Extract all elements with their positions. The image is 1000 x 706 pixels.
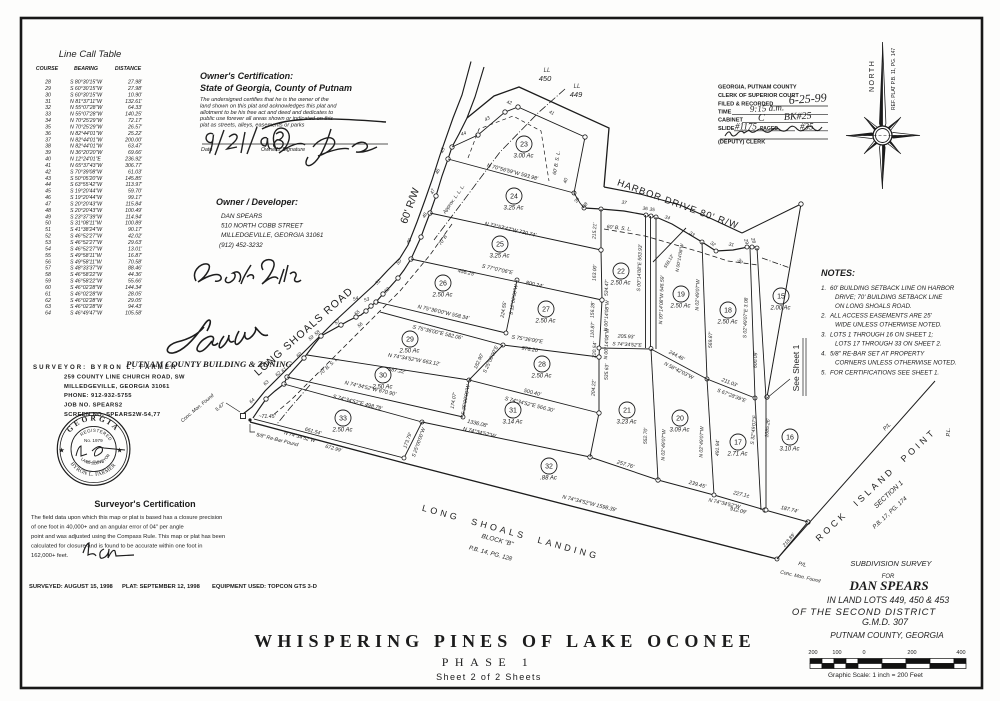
svg-text:49: 49 — [45, 214, 51, 220]
svg-text:N 82°44'01"W: N 82°44'01"W — [70, 144, 103, 150]
svg-text:C: C — [758, 113, 765, 124]
svg-text:28: 28 — [538, 362, 546, 369]
svg-text:N 36°20'20"W: N 36°20'20"W — [70, 150, 103, 156]
svg-text:State of Georgia, County of Pu: State of Georgia, County of Putnam — [200, 83, 352, 93]
svg-text:~71.45': ~71.45' — [258, 414, 276, 420]
svg-text:534.47': 534.47' — [604, 279, 611, 297]
svg-text:100: 100 — [832, 650, 841, 656]
svg-text:S 41°38'24"W: S 41°38'24"W — [70, 227, 103, 233]
svg-text:5/8" RE-BAR SET AT PROPERTY: 5/8" RE-BAR SET AT PROPERTY — [830, 351, 925, 358]
svg-text:S 50°05'20"W: S 50°05'20"W — [70, 176, 103, 182]
svg-text:29: 29 — [406, 337, 414, 344]
svg-text:S 46°02'28"W: S 46°02'28"W — [70, 304, 103, 310]
svg-text:Owner / Developer:: Owner / Developer: — [216, 197, 298, 207]
svg-text:IN LAND LOTS 449, 450 & 453: IN LAND LOTS 449, 450 & 453 — [827, 595, 949, 605]
svg-text:2.50 Ac: 2.50 Ac — [530, 374, 551, 380]
svg-text:PHONE: 912-932-5755: PHONE: 912-932-5755 — [64, 393, 132, 399]
svg-text:MILLEDGEVILLE, GEORGIA 31061: MILLEDGEVILLE, GEORGIA 31061 — [221, 232, 324, 239]
svg-text:S 19°20'44"W: S 19°20'44"W — [70, 195, 103, 201]
svg-text:S 46°52'27"W: S 46°52'27"W — [70, 240, 103, 246]
svg-text:36: 36 — [45, 131, 51, 137]
svg-text:26.57': 26.57' — [127, 124, 143, 130]
svg-text:61.03': 61.03' — [128, 169, 143, 175]
svg-text:40: 40 — [45, 157, 51, 163]
svg-text:55.66': 55.66' — [128, 279, 143, 285]
svg-text:70.58': 70.58' — [128, 259, 143, 265]
svg-text:58: 58 — [45, 272, 51, 278]
svg-text:144.34': 144.34' — [125, 285, 143, 291]
svg-text:N 12°24'01"E: N 12°24'01"E — [70, 157, 101, 163]
svg-text:point and was adjusted using t: point and was adjusted using the Compass… — [31, 534, 225, 540]
svg-text:3.09 Ac: 3.09 Ac — [669, 428, 689, 434]
svg-text:51: 51 — [45, 227, 51, 233]
svg-text:N 82°44'01"W: N 82°44'01"W — [70, 137, 103, 143]
svg-text:#1175: #1175 — [735, 122, 757, 132]
svg-text:3.14 Ac: 3.14 Ac — [502, 420, 522, 426]
svg-text:PUTNAM COUNTY, GEORGIA: PUTNAM COUNTY, GEORGIA — [830, 631, 944, 640]
svg-text:2.50 Ac: 2.50 Ac — [398, 349, 419, 355]
svg-text:54: 54 — [45, 246, 51, 252]
svg-text:2.50 Ac: 2.50 Ac — [371, 385, 392, 391]
svg-text:69.66': 69.66' — [128, 150, 143, 156]
svg-text:450: 450 — [539, 74, 552, 83]
svg-text:PAGED: PAGED — [760, 126, 778, 132]
svg-text:27.98': 27.98' — [127, 86, 143, 92]
svg-text:236.92': 236.92' — [124, 157, 143, 163]
svg-text:115.84': 115.84' — [126, 201, 143, 207]
svg-text:60' BUILDING SETBACK LINE ON H: 60' BUILDING SETBACK LINE ON HARBOR — [830, 285, 955, 292]
svg-text:552.70': 552.70' — [643, 427, 650, 444]
svg-text:1.: 1. — [821, 285, 826, 292]
svg-text:44: 44 — [45, 182, 51, 188]
svg-text:13.01': 13.01' — [128, 246, 143, 252]
svg-text:41: 41 — [45, 163, 51, 169]
svg-text:27: 27 — [542, 307, 550, 314]
svg-text:25: 25 — [496, 242, 504, 249]
svg-text:.88 Ac: .88 Ac — [540, 476, 557, 482]
svg-text:37: 37 — [621, 200, 627, 206]
svg-text:59.70': 59.70' — [128, 189, 143, 195]
svg-text:31: 31 — [509, 408, 517, 415]
svg-text:2.50 Ac: 2.50 Ac — [609, 281, 630, 287]
svg-text:★: ★ — [117, 447, 123, 455]
svg-text:P.L.: P.L. — [946, 427, 952, 436]
svg-text:31: 31 — [45, 99, 51, 105]
svg-text:162,000+ feet.: 162,000+ feet. — [31, 553, 69, 559]
svg-text:60: 60 — [45, 285, 51, 291]
svg-text:25.22': 25.22' — [127, 131, 143, 137]
svg-text:28.05': 28.05' — [127, 291, 143, 297]
svg-text:43: 43 — [45, 176, 51, 182]
svg-text:S 46°52'27"W: S 46°52'27"W — [70, 246, 103, 252]
svg-text:No. 1979: No. 1979 — [84, 438, 103, 443]
svg-text:259 COUNTY LINE CHURCH ROAD, S: 259 COUNTY LINE CHURCH ROAD, SW — [64, 374, 185, 380]
svg-text:156.28': 156.28' — [590, 301, 597, 319]
svg-text:62: 62 — [45, 298, 51, 304]
svg-text:S 31°08'11"W: S 31°08'11"W — [70, 221, 103, 227]
svg-text:ON LONG SHOALS ROAD.: ON LONG SHOALS ROAD. — [835, 303, 912, 310]
svg-text:S 49°58'11"W: S 49°58'11"W — [70, 253, 103, 259]
svg-text:94.43': 94.43' — [128, 304, 143, 310]
svg-text:CLERK OF SUPERIOR COURT: CLERK OF SUPERIOR COURT — [718, 93, 799, 99]
svg-text:N 70°25'29"W: N 70°25'29"W — [70, 124, 103, 130]
svg-text:19: 19 — [677, 292, 685, 299]
svg-text:N 55°07'28"W: N 55°07'28"W — [70, 112, 103, 118]
svg-text:WIDE UNLESS OTHERWISE NOTED.: WIDE UNLESS OTHERWISE NOTED. — [835, 322, 942, 329]
svg-text:28: 28 — [44, 80, 51, 86]
svg-text:88.46': 88.46' — [128, 266, 143, 272]
svg-text:16: 16 — [786, 435, 794, 442]
svg-text:Sheet 2 of 2 Sheets: Sheet 2 of 2 Sheets — [436, 672, 542, 682]
svg-text:DRIVE; 70' BUILDING SETBACK LI: DRIVE; 70' BUILDING SETBACK LINE — [835, 294, 943, 301]
svg-text:3.10 Ac: 3.10 Ac — [779, 447, 799, 453]
svg-text:The undersigned certifies that: The undersigned certifies that he is the… — [200, 97, 329, 103]
svg-text:53: 53 — [45, 240, 51, 246]
svg-text:38: 38 — [45, 144, 51, 150]
svg-text:3.25 Ac: 3.25 Ac — [489, 254, 509, 260]
svg-text:32: 32 — [45, 105, 51, 111]
svg-text:S 80°30'15"W: S 80°30'15"W — [70, 80, 103, 86]
svg-text:10.90': 10.90' — [128, 92, 143, 98]
svg-text:N 82°44'01"W: N 82°44'01"W — [70, 131, 103, 137]
svg-text:DISTANCE: DISTANCE — [115, 66, 142, 72]
svg-text:The field data upon which this: The field data upon which this map or pl… — [31, 515, 222, 521]
svg-text:S 23°37'39"W: S 23°37'39"W — [70, 214, 103, 220]
svg-text:SLIDE: SLIDE — [718, 126, 735, 132]
svg-text:36: 36 — [642, 206, 648, 212]
svg-text:N 81°37'11"W: N 81°37'11"W — [70, 99, 103, 105]
svg-text:NORTH: NORTH — [869, 60, 876, 92]
svg-text:ALL ACCESS EASEMENTS ARE 25': ALL ACCESS EASEMENTS ARE 25' — [829, 313, 933, 320]
svg-text:3.23 Ac: 3.23 Ac — [616, 420, 636, 426]
svg-text:GEORGIA, PUTNAM COUNTY: GEORGIA, PUTNAM COUNTY — [718, 85, 797, 91]
svg-text:600.09': 600.09' — [753, 351, 760, 368]
svg-text:34: 34 — [45, 118, 51, 124]
svg-text:2.: 2. — [820, 313, 826, 320]
svg-text:45: 45 — [45, 189, 51, 195]
svg-text:COURSE: COURSE — [36, 66, 59, 72]
svg-text:LOTS 1 THROUGH 16 ON SHEET 1;: LOTS 1 THROUGH 16 ON SHEET 1; — [830, 332, 933, 339]
svg-text:18: 18 — [724, 308, 732, 315]
svg-text:3.00 Ac: 3.00 Ac — [513, 154, 533, 160]
svg-text:64: 64 — [45, 311, 51, 317]
svg-text:29.05': 29.05' — [127, 298, 143, 304]
svg-text:S 46°49'47"W: S 46°49'47"W — [70, 311, 103, 317]
svg-text:CORNERS UNLESS OTHERWISE NOTED: CORNERS UNLESS OTHERWISE NOTED. — [835, 360, 957, 367]
svg-text:24: 24 — [510, 194, 518, 201]
svg-text:449: 449 — [570, 90, 583, 99]
svg-text:N 02°49'07"W: N 02°49'07"W — [698, 425, 705, 458]
svg-text:33: 33 — [45, 112, 51, 118]
svg-text:99.17': 99.17' — [128, 195, 143, 201]
svg-text:140.25': 140.25' — [125, 112, 143, 118]
svg-text:569.87': 569.87' — [708, 331, 715, 348]
svg-text:510 NORTH COBB STREET: 510 NORTH COBB STREET — [221, 223, 304, 230]
svg-text:306.77': 306.77' — [125, 163, 143, 169]
svg-text:NOTES:: NOTES: — [821, 268, 855, 278]
svg-text:S 70°39'08"W: S 70°39'08"W — [70, 169, 103, 175]
svg-text:S 60°30'15"W: S 60°30'15"W — [70, 86, 103, 92]
svg-text:205.93': 205.93' — [616, 334, 635, 341]
svg-text:land shown on this plat and ac: land shown on this plat and acknowledges… — [200, 103, 337, 109]
svg-text:132.61': 132.61' — [125, 99, 143, 105]
svg-text:S 49°58'11"W: S 49°58'11"W — [70, 259, 103, 265]
svg-text:17: 17 — [734, 440, 742, 447]
svg-text:35: 35 — [649, 207, 655, 213]
svg-text:N 02°49'07"W: N 02°49'07"W — [660, 428, 667, 461]
svg-text:S 20°20'43"W: S 20°20'43"W — [70, 208, 103, 214]
svg-text:S 63°55'42"W: S 63°55'42"W — [70, 182, 103, 188]
svg-text:22: 22 — [617, 269, 625, 276]
svg-text:PLAT: SEPTEMBER 12, 1998: PLAT: SEPTEMBER 12, 1998 — [122, 584, 201, 590]
svg-text:★: ★ — [59, 447, 65, 455]
svg-text:200.00': 200.00' — [124, 137, 143, 143]
svg-text:6-25-99: 6-25-99 — [788, 90, 827, 107]
svg-text:220.54': 220.54' — [592, 341, 599, 360]
svg-text:29: 29 — [44, 86, 51, 92]
svg-text:200: 200 — [907, 650, 916, 656]
svg-text:S 19°20'44"W: S 19°20'44"W — [70, 189, 103, 195]
svg-text:100.89': 100.89' — [125, 221, 143, 227]
svg-text:30: 30 — [45, 92, 51, 98]
svg-text:SUBDIVISION SURVEY: SUBDIVISION SURVEY — [850, 559, 932, 568]
svg-text:TIME: TIME — [718, 110, 732, 116]
svg-text:535.63': 535.63' — [604, 363, 611, 381]
svg-text:23: 23 — [520, 142, 528, 149]
svg-text:Graphic Scale: 1 inch = 2: Graphic Scale: 1 inch = 200 Feet — [828, 672, 923, 679]
svg-text:5.: 5. — [821, 370, 826, 377]
svg-text:MILLEDGEVILLE, GEORGIA 31061: MILLEDGEVILLE, GEORGIA 31061 — [64, 384, 170, 390]
svg-text:42.02': 42.02' — [128, 234, 143, 240]
svg-text:30: 30 — [379, 373, 387, 380]
svg-text:105.58': 105.58' — [125, 311, 143, 317]
svg-text:2.50 Ac: 2.50 Ac — [669, 304, 690, 310]
svg-text:491.94': 491.94' — [715, 439, 722, 456]
svg-text:calculated for closure and is: calculated for closure and is found to b… — [31, 544, 202, 550]
svg-text:400: 400 — [956, 650, 965, 656]
svg-text:100.49': 100.49' — [125, 208, 143, 214]
svg-text:90.17': 90.17' — [128, 227, 143, 233]
svg-text:15: 15 — [777, 294, 785, 301]
svg-text:BEARING: BEARING — [74, 66, 98, 72]
svg-text:plat as streets, alleys, easem: plat as streets, alleys, easements or pa… — [199, 123, 305, 129]
svg-text:2.71 Ac: 2.71 Ac — [726, 452, 747, 458]
svg-text:FOR CERTIFICATIONS SEE SHEET 1: FOR CERTIFICATIONS SEE SHEET 1. — [830, 370, 939, 377]
svg-text:SURVEYOR: BYRON L. FARMER: SURVEYOR: BYRON L. FARMER — [33, 364, 177, 371]
svg-text:52: 52 — [45, 234, 51, 240]
svg-text:2.50 Ac: 2.50 Ac — [716, 320, 737, 326]
svg-text:Line Call Table: Line Call Table — [59, 49, 122, 60]
svg-text:DAN SPEARS: DAN SPEARS — [848, 578, 928, 593]
svg-text:See Sheet 1: See Sheet 1 — [791, 344, 801, 391]
svg-text:48: 48 — [45, 208, 51, 214]
svg-text:29.63': 29.63' — [127, 240, 143, 246]
svg-text:46: 46 — [45, 195, 51, 201]
svg-text:S 46°02'28"W: S 46°02'28"W — [70, 298, 103, 304]
svg-text:35: 35 — [45, 124, 51, 130]
svg-text:PS-45-PLS: PS-45-PLS — [86, 460, 105, 464]
svg-text:21: 21 — [623, 408, 631, 415]
svg-text:G.M.D. 307: G.M.D. 307 — [862, 617, 909, 627]
svg-text:163.00': 163.00' — [592, 264, 599, 282]
svg-text:44.36': 44.36' — [128, 272, 143, 278]
svg-text:113.97': 113.97' — [126, 182, 143, 188]
svg-text:REF. PLAT P.B. 11, PG. 147: REF. PLAT P.B. 11, PG. 147 — [891, 48, 897, 110]
svg-text:S 46°02'28"W: S 46°02'28"W — [70, 285, 103, 291]
svg-text:63.47': 63.47' — [128, 144, 143, 150]
svg-text:110.87': 110.87' — [590, 321, 597, 338]
svg-text:S 48°33'37"W: S 48°33'37"W — [70, 266, 103, 272]
svg-text:N 70°25'29"W: N 70°25'29"W — [70, 118, 103, 124]
svg-text:4.: 4. — [821, 351, 826, 358]
svg-text:DAN SPEARS: DAN SPEARS — [221, 213, 263, 220]
svg-text:EQUIPMENT USED: TOPCON GTS 3-D: EQUIPMENT USED: TOPCON GTS 3-D — [212, 584, 317, 590]
svg-text:2.00 Ac: 2.00 Ac — [769, 306, 790, 312]
svg-text:26: 26 — [439, 281, 447, 288]
svg-text:S 46°58'22"W: S 46°58'22"W — [70, 272, 103, 278]
svg-text:(DEPUTY) CLERK: (DEPUTY) CLERK — [718, 140, 765, 146]
svg-text:20: 20 — [676, 416, 684, 423]
svg-text:3.: 3. — [821, 332, 826, 339]
svg-text:LOTS 17 THROUGH 33 ON SHEET 2.: LOTS 17 THROUGH 33 ON SHEET 2. — [835, 341, 942, 348]
svg-text:2.50 Ac: 2.50 Ac — [331, 428, 352, 434]
svg-text:Owner's Certification:: Owner's Certification: — [200, 71, 293, 81]
svg-text:PHASE 1: PHASE 1 — [442, 655, 535, 669]
svg-text:72.17': 72.17' — [128, 118, 143, 124]
svg-text:215.21': 215.21' — [592, 222, 599, 241]
svg-text:39: 39 — [45, 150, 51, 156]
svg-text:33: 33 — [339, 416, 347, 423]
svg-text:0: 0 — [862, 650, 865, 656]
svg-text:2.50 Ac: 2.50 Ac — [431, 293, 452, 299]
svg-text:16.87': 16.87' — [128, 253, 143, 259]
svg-text:64.33': 64.33' — [128, 105, 143, 111]
svg-text:S 46°02'28"W: S 46°02'28"W — [70, 291, 103, 297]
svg-text:Date: Date — [201, 147, 212, 153]
svg-text:56: 56 — [45, 259, 51, 265]
svg-text:N 65°37'43"W: N 65°37'43"W — [70, 163, 103, 169]
svg-text:9:15 a.m.: 9:15 a.m. — [750, 102, 785, 114]
svg-text:61: 61 — [45, 291, 51, 297]
svg-text:(912) 452-3232: (912) 452-3232 — [219, 242, 263, 249]
svg-text:N 02°49'07"W: N 02°49'07"W — [694, 278, 701, 311]
svg-text:S 60°30'15"W: S 60°30'15"W — [70, 92, 103, 98]
svg-text:S 46°52'27"W: S 46°52'27"W — [70, 234, 103, 240]
svg-text:S 20°20'43"W: S 20°20'43"W — [70, 201, 103, 207]
svg-text:114.94': 114.94' — [126, 214, 143, 220]
svg-text:32: 32 — [545, 464, 553, 471]
svg-text:63: 63 — [45, 304, 51, 310]
svg-text:SURVEYED: AUGUST 15, 1998: SURVEYED: AUGUST 15, 1998 — [29, 584, 114, 590]
svg-text:27.98': 27.98' — [127, 80, 143, 86]
svg-text:of one foot in 40,000+ and an: of one foot in 40,000+ and an angular er… — [31, 525, 184, 531]
svg-text:50: 50 — [45, 221, 51, 227]
svg-text:2.50 Ac: 2.50 Ac — [534, 319, 555, 325]
svg-text:WHISPERING PINES OF LAKE O: WHISPERING PINES OF LAKE OCONEE — [254, 631, 756, 651]
svg-text:allotment to be his free act a: allotment to be his free act and deed an… — [200, 110, 333, 116]
svg-text:S 46°58'22"W: S 46°58'22"W — [70, 279, 103, 285]
svg-text:200: 200 — [808, 650, 817, 656]
svg-text:3.25 Ac: 3.25 Ac — [503, 206, 523, 212]
svg-text:204.22': 204.22' — [591, 379, 598, 398]
svg-text:42: 42 — [45, 169, 51, 175]
svg-text:55: 55 — [45, 253, 51, 259]
svg-text:Surveyor's Certification: Surveyor's Certification — [94, 499, 195, 509]
svg-text:JOB NO. SPEARS2: JOB NO. SPEARS2 — [64, 403, 123, 409]
svg-text:N 55°07'28"W: N 55°07'28"W — [70, 105, 103, 111]
svg-text:59: 59 — [45, 279, 51, 285]
svg-text:145.85': 145.85' — [125, 176, 143, 182]
